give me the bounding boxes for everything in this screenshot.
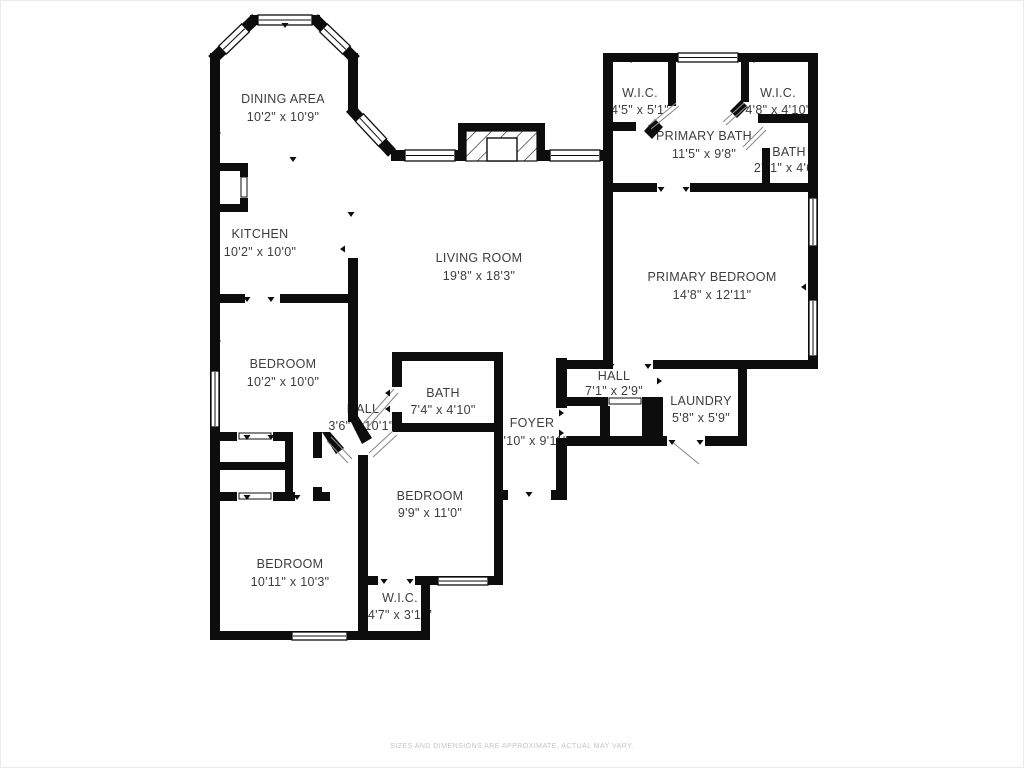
disclaimer-text: SIZES AND DIMENSIONS ARE APPROXIMATE, AC… bbox=[390, 743, 633, 750]
window-dining-diagonal bbox=[355, 114, 386, 146]
room-label-wic-right: W.I.C.4'8" x 4'10" bbox=[745, 86, 810, 117]
room-labels: DINING AREA10'2" x 10'9" KITCHEN10'2" x … bbox=[224, 86, 818, 622]
windows bbox=[211, 15, 817, 640]
hall-closet-bifold bbox=[609, 398, 641, 404]
window-bay-right bbox=[320, 24, 351, 54]
window-bedroom-left-wall bbox=[211, 371, 219, 427]
window-primary-bath-top bbox=[678, 53, 738, 62]
window-living-left bbox=[405, 150, 455, 161]
room-label-bedroom-left: BEDROOM10'2" x 10'0" bbox=[247, 357, 319, 389]
room-label-bedroom-middle: BEDROOM9'9" x 11'0" bbox=[397, 489, 464, 520]
window-bedroom-bottom bbox=[292, 632, 347, 640]
window-living-right bbox=[550, 150, 600, 161]
room-label-bedroom-bottom: BEDROOM10'11" x 10'3" bbox=[251, 557, 330, 589]
window-bay-left bbox=[219, 24, 250, 54]
window-primary-bedroom-lower bbox=[809, 300, 817, 356]
room-label-bath-center: BATH7'4" x 4'10" bbox=[410, 386, 475, 417]
door-ticks bbox=[216, 23, 806, 584]
room-label-primary-bedroom: PRIMARY BEDROOM14'8" x 12'11" bbox=[647, 270, 776, 302]
room-label-primary-bath: PRIMARY BATH11'5" x 9'8" bbox=[656, 129, 752, 161]
room-label-laundry: LAUNDRY5'8" x 5'9" bbox=[670, 394, 732, 425]
walls bbox=[210, 15, 818, 640]
floor-plan-canvas: DINING AREA10'2" x 10'9" KITCHEN10'2" x … bbox=[0, 0, 1024, 768]
closet-bifold-lower bbox=[239, 493, 271, 499]
room-label-dining-area: DINING AREA10'2" x 10'9" bbox=[241, 92, 325, 124]
window-primary-bedroom-upper bbox=[809, 198, 817, 246]
fireplace bbox=[466, 131, 537, 161]
room-label-wic-left: W.I.C.4'5" x 5'1" bbox=[611, 86, 669, 117]
room-label-living-room: LIVING ROOM19'8" x 18'3" bbox=[436, 251, 523, 283]
pantry-door bbox=[241, 177, 247, 197]
room-label-hall-right: HALL7'1" x 2'9" bbox=[585, 369, 643, 398]
closet-bifold-upper bbox=[239, 433, 271, 439]
fireplace-firebox bbox=[487, 138, 517, 161]
floor-plan-page: DINING AREA10'2" x 10'9" KITCHEN10'2" x … bbox=[0, 0, 1024, 768]
window-bedroom-middle-bottom bbox=[438, 577, 488, 585]
room-label-kitchen: KITCHEN10'2" x 10'0" bbox=[224, 227, 296, 259]
